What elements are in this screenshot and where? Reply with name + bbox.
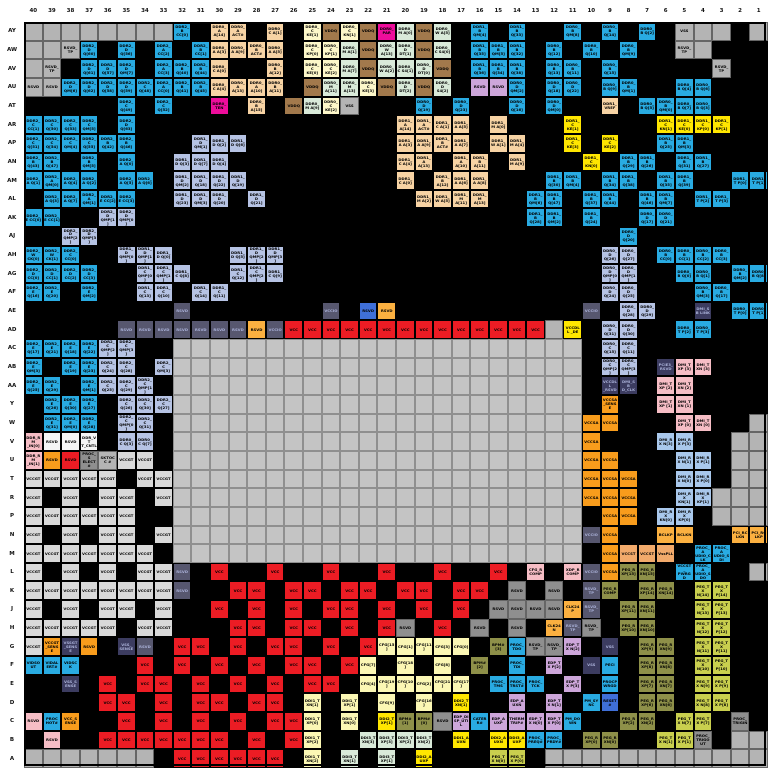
ball-cell [322,171,341,190]
ball-cell [656,227,675,246]
ball-cell: EDP_A UXP [489,712,508,731]
ball-cell [675,581,694,600]
ball-cell [545,675,564,694]
ball-cell: DDR0_B QM[2] [731,264,750,283]
ball-cell [210,208,229,227]
ball-cell [173,432,192,451]
ball-cell [322,507,341,526]
ball-cell: VCCSA [619,507,638,526]
ball-cell: RSVD [470,619,489,638]
ball-cell [563,97,582,116]
ball-cell [377,208,396,227]
ball-cell [731,395,750,414]
ball-cell: VCC [229,581,248,600]
ball-cell [229,432,248,451]
ball-cell [247,339,266,358]
ball-cell [489,153,508,172]
ball-cell: DDR2_C Q[53] [61,115,80,134]
ball-cell [284,115,303,134]
ball-cell [24,320,43,339]
ball-cell: VCC [340,619,359,638]
ball-cell: DDR2_D CC[1] [43,264,62,283]
ball-cell [489,339,508,358]
ball-cell [415,171,434,190]
ball-cell [247,544,266,563]
ball-cell: VDDQ [359,41,378,60]
ball-cell: DDR2_C Q[29] [117,376,136,395]
ball-cell [415,302,434,321]
ball-cell [229,339,248,358]
ball-cell: VCC [303,675,322,694]
ball-cell [136,693,155,712]
column-header: 16 [470,0,489,22]
ball-cell [638,451,657,470]
ball-cell [247,414,266,433]
ball-cell: DDR2_D CC[0] [24,264,43,283]
ball-cell [563,749,582,768]
ball-cell [452,246,471,265]
ball-cell [433,283,452,302]
ball-cell [191,376,210,395]
ball-cell: VDDQ [415,41,434,60]
ball-cell [415,339,434,358]
ball-cell: VDDQ [322,22,341,41]
ball-cell: PEG_TX N[14] [694,581,713,600]
ball-cell: DDR0_M A[0] [396,22,415,41]
ball-cell: VCC [322,320,341,339]
ball-cell [396,376,415,395]
ball-cell: PROCP WRGD [601,675,620,694]
ball-cell [656,600,675,619]
row-label: G [0,637,24,656]
ball-cell [433,264,452,283]
row-label: AM [0,171,24,190]
ball-cell: DDR0_B Q[2] [638,22,657,41]
ball-cell [154,432,173,451]
ball-cell: DDR1_B ACT# [433,134,452,153]
ball-cell [359,432,378,451]
ball-cell [229,544,248,563]
ball-cell: VCCSA [601,451,620,470]
ball-cell: DDR1_B A[12] [433,171,452,190]
ball-cell: VCC [210,731,229,750]
ball-cell [322,731,341,750]
ball-cell [638,470,657,489]
ball-cell [396,432,415,451]
ball-cell: DDR0_C A[1] [266,22,285,41]
ball-cell [173,227,192,246]
ball-cell [377,451,396,470]
ball-cell: PEG_R XP[14] [638,581,657,600]
ball-cell [526,283,545,302]
ball-cell: DDR1_D Q[2] [210,134,229,153]
ball-cell [340,451,359,470]
ball-cell [340,246,359,265]
ball-cell: RSVD [136,320,155,339]
ball-cell [210,432,229,451]
ball-cell [526,302,545,321]
ball-cell [340,302,359,321]
ball-cell [452,470,471,489]
ball-cell: VCCGT [117,488,136,507]
ball-cell: DDR1_A ACT# [415,115,434,134]
ball-cell [452,395,471,414]
ball-cell: VCCST_ PWRGD [675,563,694,582]
ball-cell: RSVD [80,637,99,656]
ball-cell: DDR2_A Q[5] [117,171,136,190]
ball-cell [694,134,713,153]
ball-cell [489,619,508,638]
ball-cell [489,208,508,227]
ball-cell [545,432,564,451]
ball-cell: VCCGT [61,526,80,545]
ball-cell [619,675,638,694]
ball-cell: DDR0_M A[7] [340,59,359,78]
ball-cell [191,227,210,246]
ball-cell [731,581,750,600]
ball-cell [601,432,620,451]
ball-cell [749,693,768,712]
ball-cell: VCC [284,656,303,675]
ball-cell: DMI_RX P[0] [694,470,713,489]
ball-cell [563,283,582,302]
ball-cell: DDR1_C A[4] [396,153,415,172]
ball-cell: DDR0_C QMP[2] [601,358,620,377]
row-label: Y [0,395,24,414]
ball-cell: DDI2_A UXP [415,749,434,768]
ball-cell: DDR1_D Q[23] [173,190,192,209]
ball-cell [303,358,322,377]
ball-cell: DDR1_M A[4] [508,134,527,153]
ball-cell: DDR0_C A[4] [210,78,229,97]
ball-cell [43,600,62,619]
ball-cell [43,526,62,545]
ball-cell [266,115,285,134]
ball-cell [694,227,713,246]
ball-cell: RSVD [191,320,210,339]
ball-cell: DDR1_M A[9] [508,153,527,172]
ball-cell: DDR2_E Q[18] [61,339,80,358]
ball-cell: DDR1_T P[0] [731,171,750,190]
ball-cell: VCCGT [80,470,99,489]
ball-cell [415,451,434,470]
ball-cell: VCC [303,619,322,638]
row-label: AT [0,97,24,116]
ball-cell [582,246,601,265]
ball-cell: DDR0_C Q[15] [601,339,620,358]
ball-cell: VCCGT [24,488,43,507]
ball-cell: RSVD [508,619,527,638]
ball-cell: VCC [415,320,434,339]
ball-cell [470,693,489,712]
ball-cell: DDR1_M A[11] [452,190,471,209]
ball-cell: VIDSC K [61,656,80,675]
ball-cell: PEG_TX N[1] [656,731,675,750]
ball-cell [489,376,508,395]
ball-cell [452,358,471,377]
column-header: 11 [563,0,582,22]
ball-cell [638,358,657,377]
ball-cell [247,637,266,656]
ball-cell [247,115,266,134]
ball-cell [749,619,768,638]
ball-cell: DDR2_C Q[49] [117,97,136,116]
ball-cell: DMI_TXP [0] [675,414,694,433]
ball-cell: PEG_TX N[7] [675,712,694,731]
ball-cell [563,227,582,246]
ball-cell: VCC [433,563,452,582]
ball-cell [303,600,322,619]
column-header: 33 [154,0,173,22]
ball-cell: DDR0_ PAR [377,22,396,41]
ball-cell [415,227,434,246]
ball-cell: VCCGT [98,488,117,507]
ball-cell [563,488,582,507]
ball-cell [322,190,341,209]
ball-cell: VSS [340,97,359,116]
ball-cell: DDR0_C S4[0] [433,41,452,60]
ball-cell: VCC [359,320,378,339]
ball-cell [563,264,582,283]
ball-cell: RSVD [43,731,62,750]
ball-cell [582,283,601,302]
ball-cell [563,731,582,750]
ball-cell: VCCGT [117,600,136,619]
ball-cell: DDR1_D QMP[0] [117,246,136,265]
ball-cell: RSVD [136,637,155,656]
ball-cell [340,395,359,414]
ball-cell: VCCGT _SENSE [43,637,62,656]
ball-cell [80,563,99,582]
ball-cell: RSVD_ TP [582,600,601,619]
ball-cell: VCC [322,675,341,694]
ball-cell [136,190,155,209]
ball-cell [452,264,471,283]
row-label: R [0,488,24,507]
column-header: 29 [229,0,248,22]
ball-cell: CFG_R COMP [526,563,545,582]
ball-cell [284,246,303,265]
ball-cell [154,153,173,172]
ball-cell [154,208,173,227]
ball-cell: PEG_TX P[14] [712,581,731,600]
ball-cell [266,731,285,750]
ball-cell [415,488,434,507]
ball-cell: DDR2_D Q[58] [98,78,117,97]
ball-cell: CFG[1] [396,637,415,656]
ball-cell: VSS [675,22,694,41]
ball-cell [433,731,452,750]
ball-cell [154,134,173,153]
ball-cell: VDDQ [433,59,452,78]
ball-cell: DDR0_B CC[3] [712,246,731,265]
row-label: AH [0,246,24,265]
ball-cell [322,451,341,470]
ball-cell: EDP_DI SP_UTIL [452,712,471,731]
ball-cell: VCC [452,581,471,600]
ball-cell [433,395,452,414]
ball-cell [173,470,192,489]
ball-cell [731,208,750,227]
ball-cell: CFG[17] [452,675,471,694]
ball-cell [303,190,322,209]
ball-cell [191,544,210,563]
ball-cell [284,526,303,545]
ball-cell [619,134,638,153]
ball-cell [303,153,322,172]
ball-cell: DDR1_D Q[6] [229,134,248,153]
ball-cell [43,22,62,41]
ball-cell [470,115,489,134]
ball-cell: DDR1_B Q[44] [601,190,620,209]
ball-cell [712,171,731,190]
ball-cell: DDR0_B Q[7] [675,97,694,116]
row-label: AV [0,59,24,78]
ball-cell: VCC [266,749,285,768]
ball-cell [322,208,341,227]
ball-cell [173,358,192,377]
ball-cell [322,115,341,134]
ball-cell [470,339,489,358]
ball-cell [638,264,657,283]
ball-cell [210,264,229,283]
ball-cell: DDR2_C Q[25] [98,376,117,395]
ball-cell: VCCIO [582,526,601,545]
ball-cell: PEG_R XP[11] [619,600,638,619]
ball-cell: DDR2_B Q[42] [98,134,117,153]
ball-cell [136,115,155,134]
ball-cell: DDR2_E Q[31] [43,414,62,433]
ball-cell [303,544,322,563]
ball-cell [638,395,657,414]
ball-cell [712,451,731,470]
ball-cell: DDR1_B QM[3] [675,134,694,153]
ball-cell [136,227,155,246]
ball-cell: DDR2_A CC[2] [154,41,173,60]
ball-cell [749,563,768,582]
ball-cell: VCC [415,581,434,600]
ball-cell: DDR0_A A[13] [229,78,248,97]
ball-cell [619,451,638,470]
ball-cell [24,302,43,321]
ball-cell: DDR0_B ACT# [247,41,266,60]
ball-cell [433,600,452,619]
ball-cell: DDR0_D QM[2] [508,78,527,97]
ball-cell [619,749,638,768]
ball-cell [229,451,248,470]
ball-cell: DDR0_C KE[2] [322,59,341,78]
ballout-page: 4039383736353433323130292827262524232221… [0,0,768,768]
ball-cell: VCC [266,693,285,712]
ball-cell: VCC [470,320,489,339]
column-header: 21 [377,0,396,22]
ball-cell [80,302,99,321]
ball-cell [656,563,675,582]
ball-cell [284,171,303,190]
ball-cell [191,339,210,358]
ball-cell: DDR0_C KE[0] [303,59,322,78]
ball-cell [284,264,303,283]
ball-cell: DDR0_B A[11] [266,78,285,97]
ball-cell: DDR2_E QM[1] [80,376,99,395]
ball-cell: PROC_ TDI [508,656,527,675]
ball-cell [284,507,303,526]
ball-cell [470,246,489,265]
ball-cell: DDR2_E Q[27] [80,395,99,414]
ball-cell [545,563,564,582]
ball-cell [43,358,62,377]
ball-cell: DDR1_B Q[24] [582,208,601,227]
ball-cell [526,376,545,395]
ball-cell: DDI3_T XN[1] [340,749,359,768]
ball-cell: VCCGT [154,563,173,582]
column-header: 7 [638,0,657,22]
ball-cell [749,190,768,209]
ball-cell: DDR1_B Q[46] [638,190,657,209]
ball-cell: VCC [377,619,396,638]
ball-cell [191,22,210,41]
ball-cell: DDR0_A A[9] [229,41,248,60]
ball-cell [154,637,173,656]
ball-cell [98,41,117,60]
ball-cell [470,749,489,768]
ball-cell [359,488,378,507]
ball-cell [601,208,620,227]
ball-cell [638,731,657,750]
ball-cell [731,656,750,675]
ball-cell: DDR0_C KN[1] [340,22,359,41]
ball-cell [489,507,508,526]
ball-cell: RSVD [43,432,62,451]
ball-cell [303,507,322,526]
ball-cell [98,656,117,675]
ball-cell [80,693,99,712]
ball-cell: DDR1_B Q[35] [656,171,675,190]
ball-cell [247,358,266,377]
ball-cell: VCC [284,731,303,750]
ball-cell [749,358,768,377]
ball-cell [508,432,527,451]
ball-cell [24,395,43,414]
ball-cell: DDR0_B Q[15] [601,59,620,78]
ball-cell: DDR1_A A[14] [396,115,415,134]
row-label: K [0,581,24,600]
ball-cell: DDR2_E CC[2] [98,190,117,209]
ball-cell: DDR1_B A[11] [470,153,489,172]
ball-cell: DDI1_A UXN [452,731,471,750]
column-header: 24 [322,0,341,22]
ball-cell [526,22,545,41]
ball-cell [694,59,713,78]
ball-cell: CFG[16] [415,693,434,712]
ball-cell: DDR0_B Q[14] [601,22,620,41]
ball-cell [340,488,359,507]
ball-cell: VCCSA [582,432,601,451]
ball-cell [712,712,731,731]
ball-cell [322,414,341,433]
ball-cell [322,488,341,507]
ball-cell [470,526,489,545]
ball-cell [229,656,248,675]
ball-cell [43,563,62,582]
ball-cell: PEG_TX P[1] [675,731,694,750]
ball-cell [191,507,210,526]
ball-cell [154,376,173,395]
ball-cell [359,395,378,414]
ball-cell: VCC [377,320,396,339]
ball-cell [247,526,266,545]
ball-cell: DDR2_E Q[25] [24,376,43,395]
